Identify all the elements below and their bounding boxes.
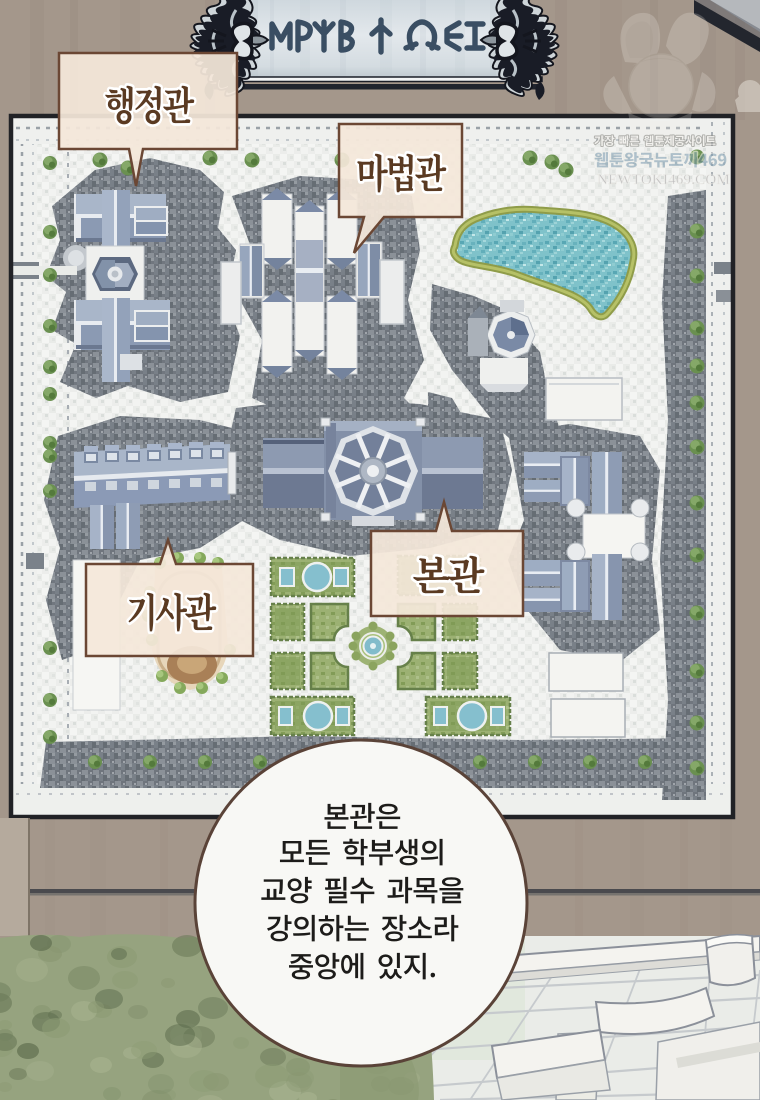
- svg-text:NEWTOKI469.COM: NEWTOKI469.COM: [597, 172, 730, 188]
